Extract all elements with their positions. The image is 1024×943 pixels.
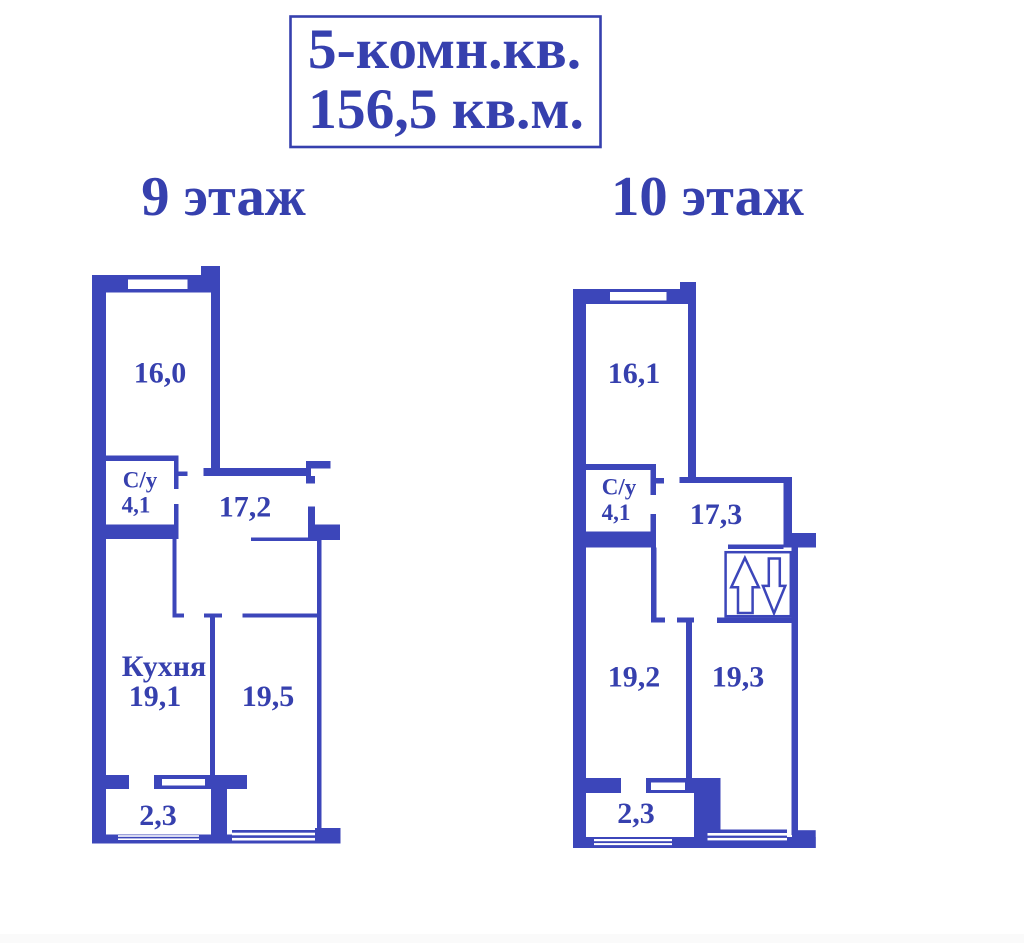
svg-text:2,3: 2,3 <box>617 797 655 830</box>
svg-text:16,0: 16,0 <box>134 357 187 390</box>
svg-text:19,3: 19,3 <box>712 661 765 694</box>
svg-text:С/у: С/у <box>602 475 637 500</box>
svg-text:17,2: 17,2 <box>219 491 272 524</box>
svg-text:9 этаж: 9 этаж <box>141 166 305 228</box>
svg-text:С/у: С/у <box>123 468 158 493</box>
svg-text:2,3: 2,3 <box>139 799 177 832</box>
svg-text:4,1: 4,1 <box>602 500 631 525</box>
svg-text:16,1: 16,1 <box>608 357 661 390</box>
svg-text:4,1: 4,1 <box>122 493 151 518</box>
svg-text:19,2: 19,2 <box>608 661 661 694</box>
svg-text:5-комн.кв.: 5-комн.кв. <box>308 18 581 81</box>
svg-text:156,5 кв.м.: 156,5 кв.м. <box>308 78 584 141</box>
svg-text:19,5: 19,5 <box>242 680 295 713</box>
svg-text:Кухня: Кухня <box>122 650 207 683</box>
svg-text:17,3: 17,3 <box>690 498 743 531</box>
svg-text:19,1: 19,1 <box>129 680 182 713</box>
svg-text:10 этаж: 10 этаж <box>611 166 804 228</box>
